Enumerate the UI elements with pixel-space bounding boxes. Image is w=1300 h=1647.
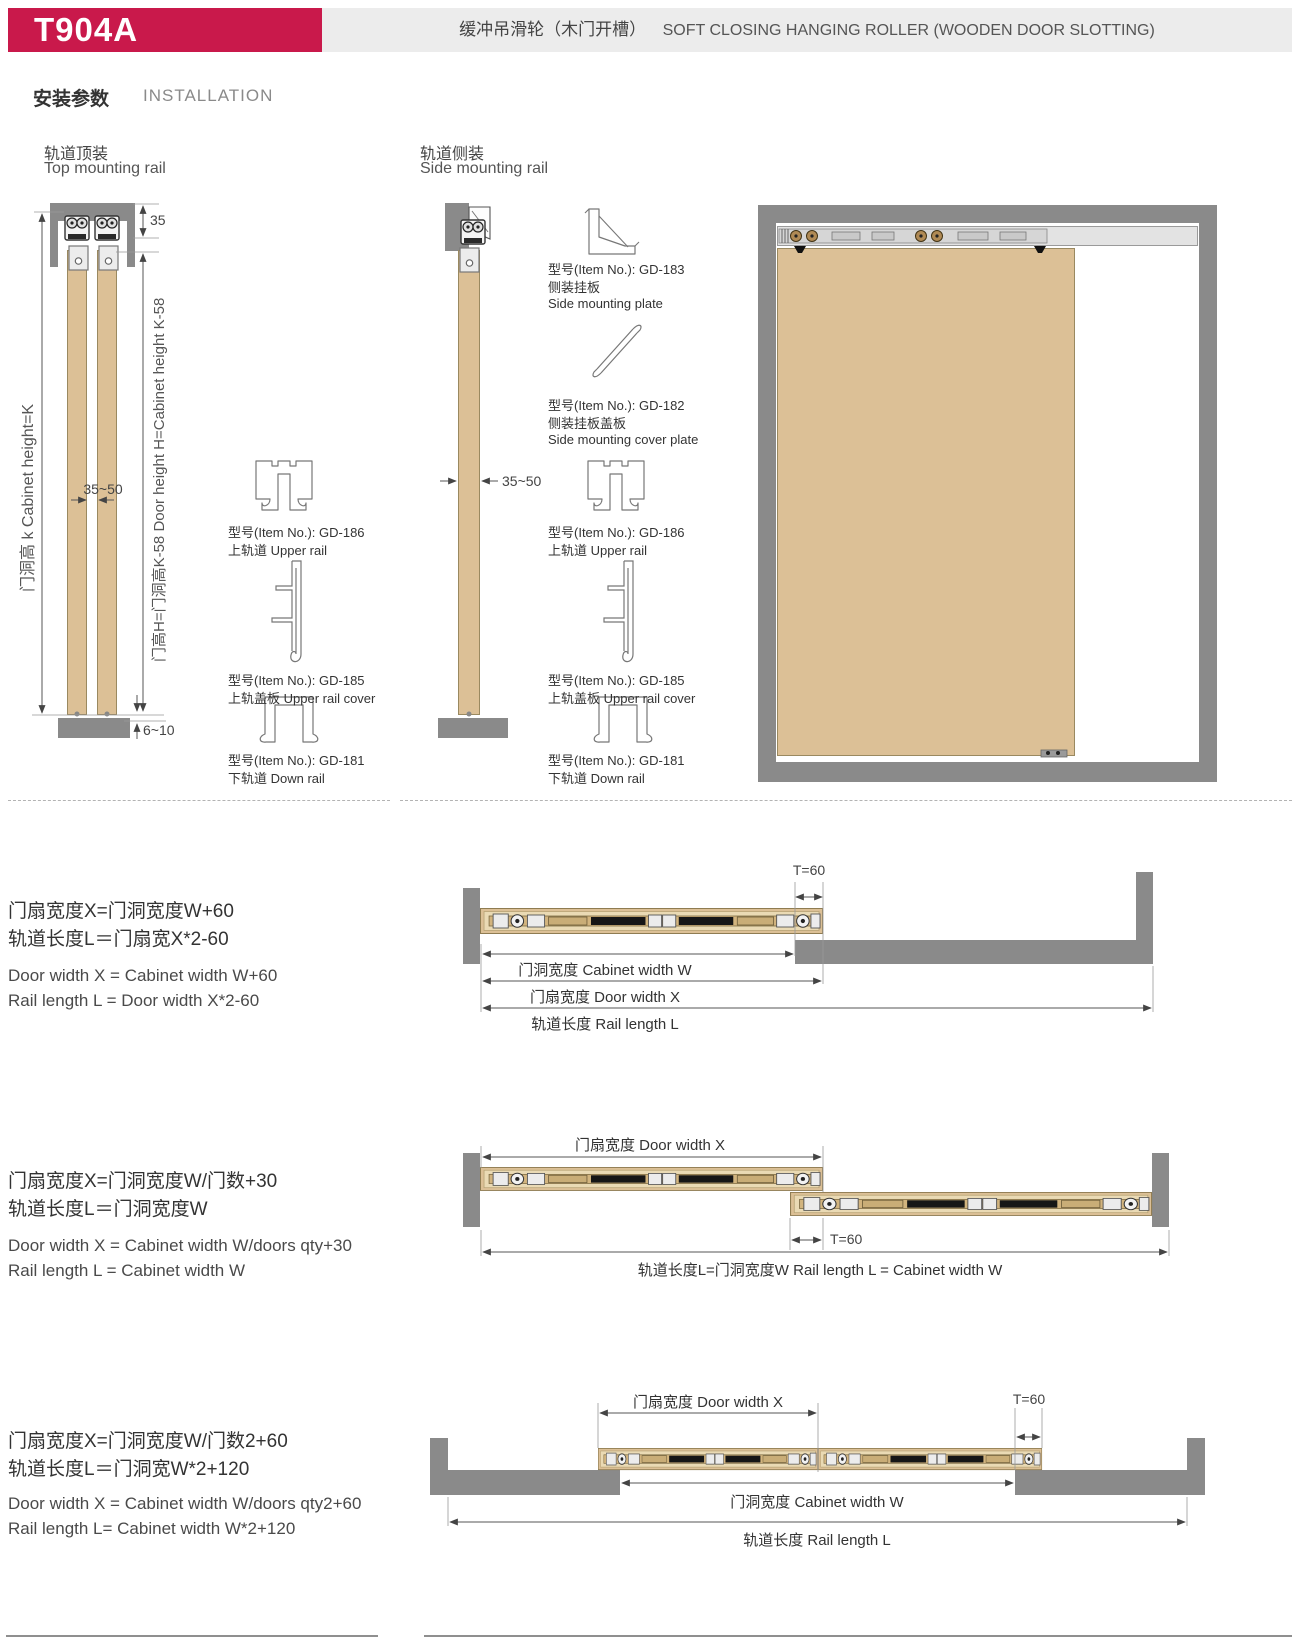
part-name-gd186-mid: 上轨道 Upper rail [548, 542, 647, 559]
l1-formula-en1: Door width X = Cabinet width W+60 [8, 966, 277, 986]
d1-left-post [463, 888, 480, 964]
side-door-panel [458, 250, 480, 715]
side-wall-block [445, 203, 469, 251]
part-item-gd186-mid: 型号(Item No.): GD-186 [548, 524, 685, 541]
d3-door-strip-left [598, 1448, 817, 1469]
d3-dim-door-width: 门扇宽度 Door width X [598, 1391, 818, 1412]
dim-35-50-left: 35~50 [66, 481, 140, 497]
d3-dim-rail-length: 轨道长度 Rail length L [697, 1529, 937, 1550]
d1-right-ledge [795, 940, 1153, 964]
section-separator-right [400, 800, 1292, 801]
d1-door-str [481, 909, 823, 934]
d2-right-post [1152, 1153, 1169, 1227]
header-subtitle-en: SOFT CLOSING HANGING ROLLER (WOODEN DOOR… [663, 22, 1155, 39]
axis-label-door-height: 门高H=门洞高K-58 Door height H=Cabinet height… [148, 298, 169, 662]
upper-rail-profile-left [256, 461, 312, 510]
part-item-gd185-mid: 型号(Item No.): GD-185 [548, 672, 685, 689]
d2-dim-rail-length: 轨道长度L=门洞宽度W Rail length L = Cabinet widt… [560, 1259, 1080, 1280]
model-number: T904A [34, 11, 138, 49]
d3-door-strip-right [818, 1448, 1041, 1469]
floor-block-middle [438, 718, 508, 738]
l1-formula-en2: Rail length L = Door width X*2-60 [8, 991, 259, 1011]
dim-35-50-side: 35~50 [502, 473, 541, 489]
section-separator-left [8, 800, 390, 801]
d3-left-ledge [448, 1470, 620, 1495]
part-item-gd181-left: 型号(Item No.): GD-181 [228, 752, 365, 769]
l1-formula-cn2: 轨道长度L＝门扇宽X*2-60 [8, 924, 229, 951]
catalog-page: T904A 缓冲吊滑轮（木门开槽） SOFT CLOSING HANGING R… [0, 0, 1300, 1647]
part-item-gd181-mid: 型号(Item No.): GD-181 [548, 752, 685, 769]
l2-formula-en2: Rail length L = Cabinet width W [8, 1261, 245, 1281]
part-name-gd186-left: 上轨道 Upper rail [228, 542, 327, 559]
upper-rail-cover-profile-left [272, 561, 301, 662]
d3-dim-cabinet-width: 门洞宽度 Cabinet width W [697, 1491, 937, 1512]
part-name-gd181-left: 下轨道 Down rail [228, 770, 325, 787]
l3-formula-en1: Door width X = Cabinet width W/doors qty… [8, 1494, 361, 1514]
d2-door-strip-upper [481, 1167, 823, 1190]
header-subtitle-banner: 缓冲吊滑轮（木门开槽） SOFT CLOSING HANGING ROLLER … [322, 8, 1292, 52]
l2-formula-cn1: 门扇宽度X=门洞宽度W/门数+30 [8, 1166, 277, 1193]
d1-dim-t60: T=60 [769, 862, 849, 878]
hanging-rail [777, 226, 1198, 246]
section-heading-en: INSTALLATION [143, 86, 273, 106]
l2-formula-en1: Door width X = Cabinet width W/doors qty… [8, 1236, 352, 1256]
d1-right-post [1136, 872, 1153, 940]
dim-35: 35 [150, 212, 166, 228]
d3-left-post [430, 1438, 448, 1495]
part-item-gd186-left: 型号(Item No.): GD-186 [228, 524, 365, 541]
upper-rail-profile-mid [588, 461, 644, 510]
part-item-gd183: 型号(Item No.): GD-183 [548, 261, 685, 278]
l3-formula-cn1: 门扇宽度X=门洞宽度W/门数2+60 [8, 1426, 288, 1453]
side-mounting-plate-profile [585, 209, 639, 254]
d3-dim-t60: T=60 [998, 1391, 1060, 1407]
d3-right-post [1187, 1438, 1205, 1495]
d1-dim-rail-length: 轨道长度 Rail length L [495, 1013, 715, 1034]
part-item-gd182: 型号(Item No.): GD-182 [548, 397, 685, 414]
dim-6-10: 6~10 [143, 722, 175, 738]
side-mounting-cover-plate-profile [593, 325, 641, 376]
part-name-gd183-cn: 侧装挂板 [548, 279, 600, 296]
l3-formula-cn2: 轨道长度L＝门洞宽W*2+120 [8, 1454, 249, 1481]
ceiling-bracket-top [50, 203, 135, 221]
d3-right-ledge [1015, 1470, 1187, 1495]
d1-dim-door-width: 门扇宽度 Door width X [495, 986, 715, 1007]
part-name-gd183-en: Side mounting plate [548, 295, 663, 312]
side-mount-title-en: Side mounting rail [420, 160, 548, 178]
footer-rule-right [424, 1635, 1292, 1637]
top-mount-title-en: Top mounting rail [44, 160, 166, 178]
ceiling-bracket-right-leg [127, 203, 135, 267]
part-name-gd185-mid: 上轨盖板 Upper rail cover [548, 690, 695, 707]
d2-door-strip-lower [791, 1192, 1152, 1215]
part-name-gd181-mid: 下轨道 Down rail [548, 770, 645, 787]
part-item-gd185-left: 型号(Item No.): GD-185 [228, 672, 365, 689]
sliding-door-panel [777, 248, 1075, 756]
upper-rail-cover-profile-mid [604, 561, 633, 662]
header-model-badge: T904A [8, 8, 322, 52]
section-heading-cn: 安装参数 [33, 84, 109, 111]
footer-rule-left [6, 1635, 378, 1637]
d2-left-post [463, 1153, 480, 1227]
part-name-gd185-left: 上轨盖板 Upper rail cover [228, 690, 375, 707]
header-subtitle-cn: 缓冲吊滑轮（木门开槽） [459, 20, 646, 39]
part-name-gd182-cn: 侧装挂板盖板 [548, 415, 626, 432]
d2-dim-t60: T=60 [830, 1231, 862, 1247]
part-name-gd182-en: Side mounting cover plate [548, 431, 698, 448]
l1-formula-cn1: 门扇宽度X=门洞宽度W+60 [8, 896, 234, 923]
d1-dim-cabinet-width: 门洞宽度 Cabinet width W [495, 959, 715, 980]
floor-block-left [58, 718, 130, 738]
l2-formula-cn2: 轨道长度L＝门洞宽度W [8, 1194, 208, 1221]
l3-formula-en2: Rail length L= Cabinet width W*2+120 [8, 1519, 295, 1539]
axis-label-cabinet-height: 门洞高 k Cabinet height=K [14, 404, 38, 592]
ceiling-bracket-left-leg [50, 203, 58, 267]
d2-dim-door-width: 门扇宽度 Door width X [540, 1134, 760, 1155]
